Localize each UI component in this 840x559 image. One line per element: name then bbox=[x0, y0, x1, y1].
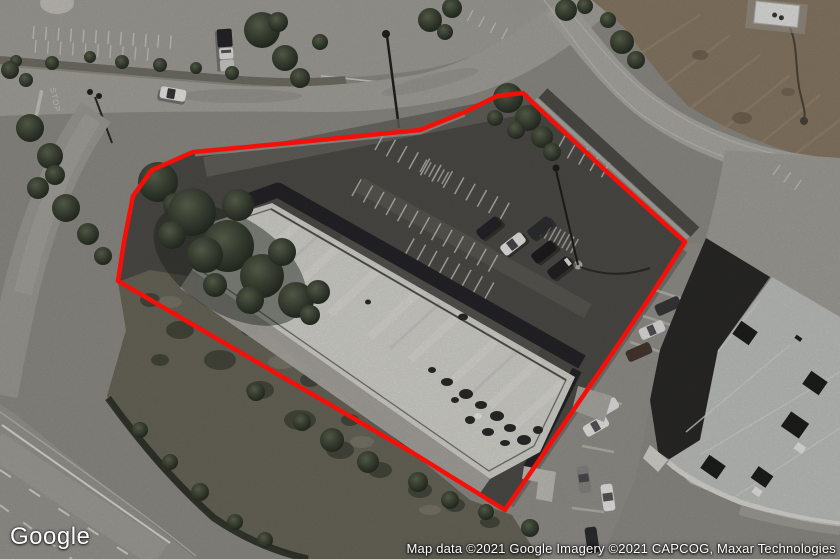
image-grain bbox=[0, 0, 840, 559]
map-viewport[interactable]: STOP bbox=[0, 0, 840, 559]
google-logo[interactable]: Google bbox=[10, 523, 90, 551]
map-attribution: Map data ©2021 Google Imagery ©2021 CAPC… bbox=[407, 541, 837, 556]
satellite-imagery[interactable]: STOP bbox=[0, 0, 840, 559]
